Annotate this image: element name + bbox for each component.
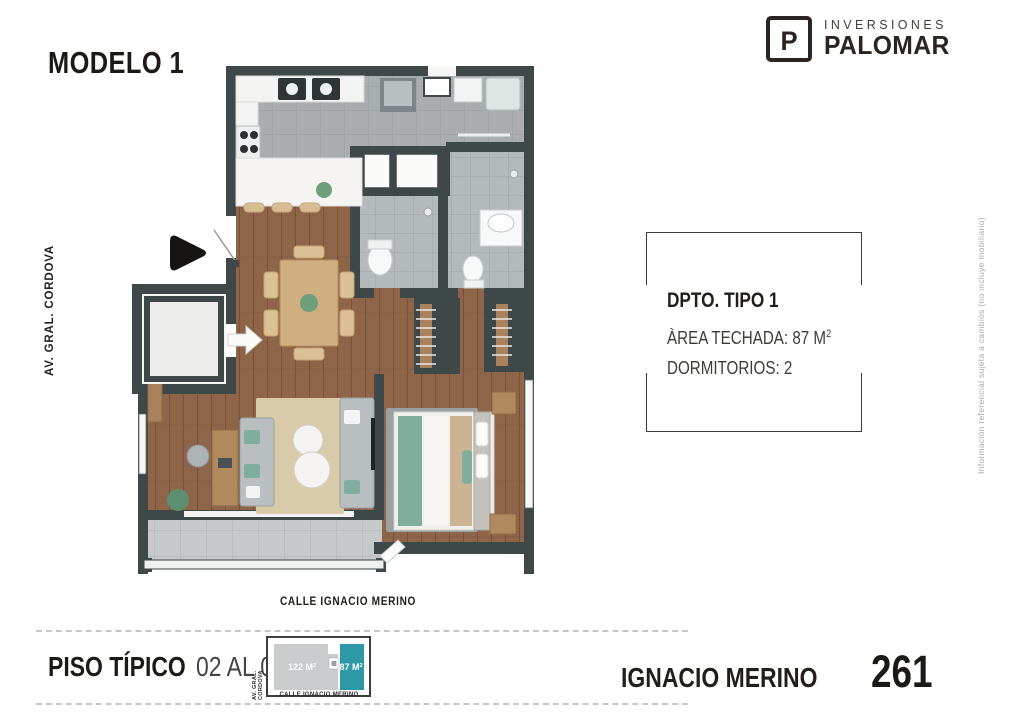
bedroom-window bbox=[525, 380, 533, 508]
bath2-sink bbox=[488, 214, 514, 232]
sink-1 bbox=[278, 78, 306, 100]
bar-stools bbox=[244, 203, 320, 212]
brand-wordmark: INVERSIONES PALOMAR bbox=[824, 19, 956, 59]
brand-bottom-line: PALOMAR bbox=[824, 32, 950, 59]
floor-range-label: PISO TÍPICO 02 AL 08 bbox=[48, 651, 286, 683]
nightstand-top bbox=[492, 392, 516, 414]
living-window bbox=[139, 414, 146, 474]
street-label-bottom: CALLE IGNACIO MERINO bbox=[163, 594, 533, 608]
utility-sink bbox=[486, 78, 520, 110]
unit-area-line: ÀREA TECHADA: 87 M2 bbox=[667, 327, 831, 349]
coffee-table-small bbox=[293, 425, 323, 455]
entry-marker-icon bbox=[170, 236, 206, 271]
duct-window-1 bbox=[364, 154, 390, 188]
bath1-door-gap bbox=[374, 288, 400, 298]
keyplan-area-other-label: 122 M2 bbox=[288, 662, 316, 672]
pillow-white-1 bbox=[246, 486, 260, 498]
balcony-floor bbox=[148, 518, 382, 560]
nightstand-bottom bbox=[490, 514, 516, 534]
plant-table bbox=[300, 294, 318, 312]
shower-head-1 bbox=[424, 208, 432, 216]
bath2-door-gap bbox=[458, 288, 484, 298]
pillow-green-1 bbox=[244, 430, 260, 444]
sink-2 bbox=[312, 78, 340, 100]
toilet-1-tank bbox=[368, 240, 392, 249]
brochure-page: { "page": { "title": "MODELO 1", "street… bbox=[0, 0, 1024, 724]
project-name: IGNACIO MERINO bbox=[621, 662, 817, 694]
washing-machine bbox=[380, 78, 416, 112]
project-name-block: IGNACIO MERINO 261 bbox=[621, 646, 946, 698]
toilet-2-tank bbox=[464, 280, 484, 288]
bed-duvet bbox=[424, 416, 448, 526]
coffee-table-large bbox=[294, 452, 330, 488]
pillow-bed-1 bbox=[476, 422, 488, 446]
disclaimer-note: Información referencial sujeta a cambios… bbox=[976, 228, 986, 474]
unit-info-content: DPTO. TIPO 1 ÀREA TECHADA: 87 M2 DORMITO… bbox=[667, 289, 867, 383]
laptop bbox=[218, 458, 232, 468]
pillow-green-3 bbox=[344, 480, 360, 494]
tv bbox=[371, 418, 375, 470]
keyplan-diagram: 122 M2 87 M2 bbox=[266, 636, 372, 700]
bed-runner-green bbox=[398, 416, 422, 526]
unit-area-sup: 2 bbox=[826, 328, 831, 340]
keyplan-street-bottom: CALLE IGNACIO MERINO bbox=[266, 692, 372, 698]
pillow-bed-2 bbox=[476, 454, 488, 478]
footer-dashed-line-top bbox=[36, 630, 688, 632]
project-number: 261 bbox=[871, 646, 933, 698]
unit-bedrooms-line: DORMITORIOS: 2 bbox=[667, 357, 792, 379]
duct-box bbox=[424, 78, 450, 96]
toilet-2 bbox=[463, 256, 483, 282]
footer-dashed-line-bottom bbox=[36, 703, 688, 705]
service-opening bbox=[428, 66, 456, 76]
door-hinge bbox=[230, 260, 239, 267]
pillow-white-2 bbox=[344, 410, 360, 424]
duct-window-2 bbox=[396, 154, 438, 188]
closet-right-rod bbox=[496, 304, 508, 366]
unit-area-text: ÀREA TECHADA: 87 M bbox=[667, 327, 826, 348]
stove bbox=[236, 126, 260, 160]
plant-living bbox=[167, 489, 189, 511]
balcony-rail-glass bbox=[144, 560, 384, 569]
keyplan-street-left: AV. GRAL. CORDOVA bbox=[252, 642, 264, 700]
monogram-letter: P bbox=[780, 26, 797, 57]
shower-head-2 bbox=[510, 170, 518, 178]
street-label-left: AV. GRAL. CORDOVA bbox=[44, 266, 56, 376]
floor-label-bold: PISO TÍPICO bbox=[48, 651, 186, 682]
bed-roll-green bbox=[462, 450, 472, 484]
door-swing bbox=[214, 230, 236, 262]
unit-info-box: DPTO. TIPO 1 ÀREA TECHADA: 87 M2 DORMITO… bbox=[646, 232, 862, 432]
desk-chair bbox=[187, 445, 209, 467]
brand-logo: P INVERSIONES PALOMAR bbox=[766, 16, 956, 62]
unit-type-title: DPTO. TIPO 1 bbox=[667, 289, 779, 313]
kitchen-island bbox=[236, 158, 362, 206]
palomar-monogram-icon: P bbox=[766, 16, 812, 62]
plant-kitchen bbox=[316, 182, 332, 198]
keyplan-area-highlight-label: 87 M2 bbox=[339, 662, 362, 672]
floorplan bbox=[128, 62, 538, 592]
closet-left-rod bbox=[420, 304, 432, 368]
elevator-frame bbox=[147, 299, 221, 379]
pillow-green-2 bbox=[244, 464, 260, 478]
water-heater bbox=[454, 78, 482, 102]
info-box-border-gap-left bbox=[644, 285, 650, 373]
keyplan-elevator-glyph bbox=[332, 661, 337, 666]
